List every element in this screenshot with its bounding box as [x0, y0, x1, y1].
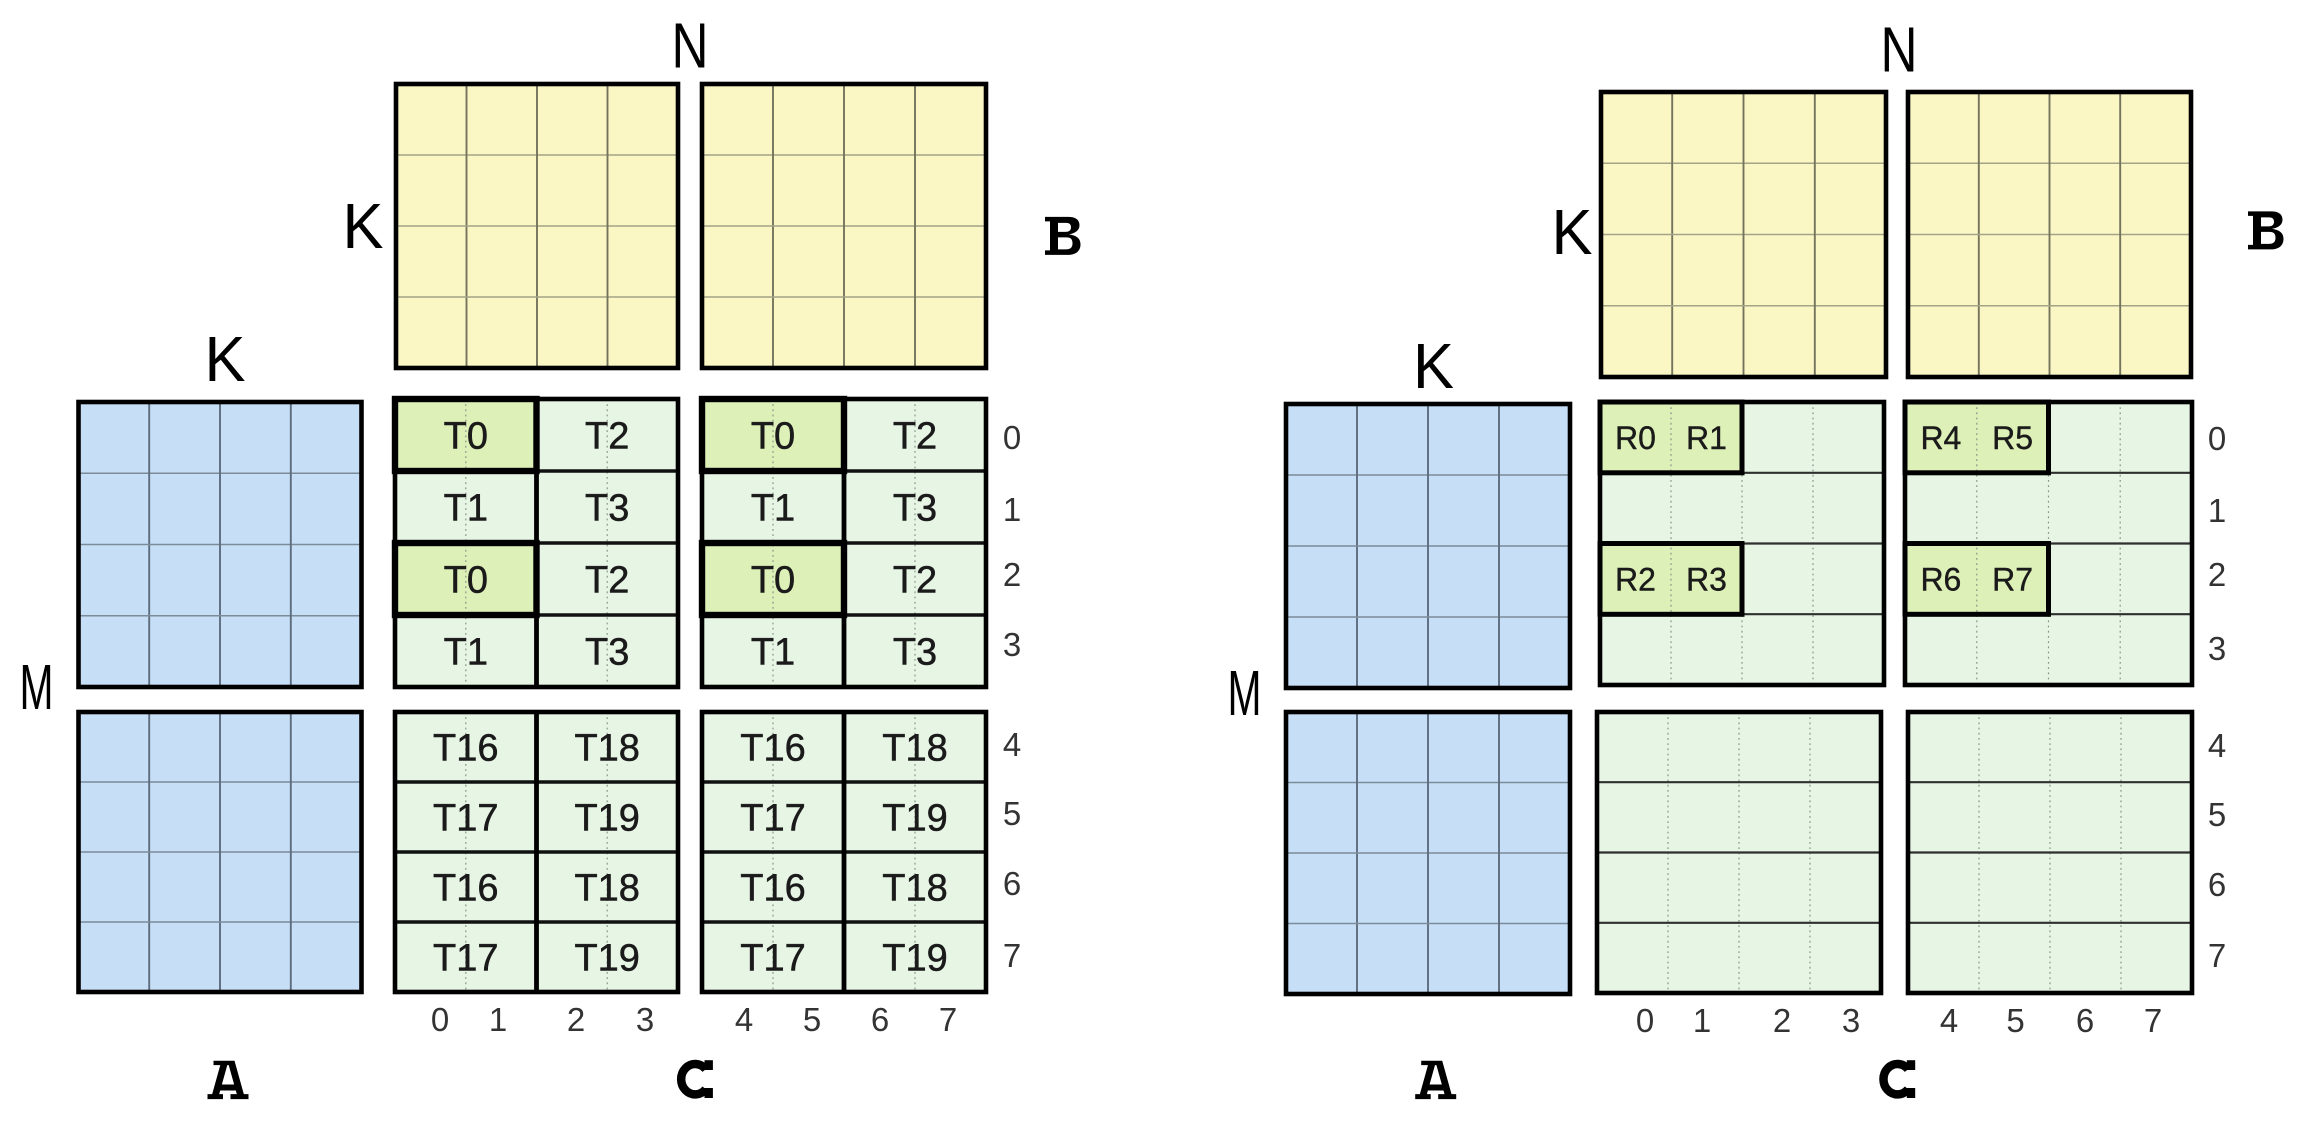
svg-text:M: M [20, 651, 54, 723]
svg-text:R6: R6 [1920, 561, 1961, 597]
svg-text:5: 5 [2006, 1002, 2024, 1039]
svg-text:7: 7 [2208, 937, 2226, 974]
svg-text:K: K [1413, 330, 1454, 402]
svg-text:4: 4 [735, 1001, 753, 1038]
svg-text:1: 1 [1003, 491, 1021, 528]
svg-text:0: 0 [2208, 420, 2226, 457]
svg-text:4: 4 [2208, 727, 2226, 764]
svg-text:1: 1 [489, 1001, 507, 1038]
svg-text:T17: T17 [433, 938, 498, 980]
svg-text:T3: T3 [893, 632, 937, 674]
svg-text:T18: T18 [882, 868, 947, 910]
svg-text:6: 6 [871, 1001, 889, 1038]
svg-text:T2: T2 [893, 560, 937, 602]
svg-text:3: 3 [1842, 1002, 1860, 1039]
svg-text:T0: T0 [751, 416, 795, 458]
svg-text:T0: T0 [751, 560, 795, 602]
svg-text:6: 6 [2076, 1002, 2094, 1039]
svg-text:T2: T2 [585, 560, 629, 602]
svg-text:5: 5 [1003, 795, 1021, 832]
svg-text:T2: T2 [893, 416, 937, 458]
svg-text:2: 2 [567, 1001, 585, 1038]
svg-text:7: 7 [1003, 937, 1021, 974]
svg-text:T1: T1 [444, 488, 488, 530]
svg-text:R5: R5 [1992, 420, 2033, 456]
svg-text:2: 2 [2208, 556, 2226, 593]
svg-text:T1: T1 [751, 632, 795, 674]
svg-text:T19: T19 [574, 798, 639, 840]
svg-text:6: 6 [1003, 865, 1021, 902]
svg-text:N: N [672, 10, 709, 82]
svg-text:T0: T0 [444, 416, 488, 458]
svg-text:7: 7 [2144, 1002, 2162, 1039]
svg-text:R3: R3 [1686, 561, 1727, 597]
svg-text:T0: T0 [444, 560, 488, 602]
svg-text:T19: T19 [882, 938, 947, 980]
svg-text:R7: R7 [1992, 561, 2033, 597]
svg-text:0: 0 [431, 1001, 449, 1038]
svg-text:T3: T3 [585, 488, 629, 530]
svg-text:5: 5 [2208, 796, 2226, 833]
svg-text:3: 3 [1003, 626, 1021, 663]
svg-text:T17: T17 [433, 798, 498, 840]
svg-text:T1: T1 [751, 488, 795, 530]
svg-text:T19: T19 [882, 798, 947, 840]
svg-text:K: K [205, 323, 246, 395]
svg-text:4: 4 [1940, 1002, 1958, 1039]
svg-text:T3: T3 [585, 632, 629, 674]
svg-text:T16: T16 [740, 868, 805, 910]
svg-text:1: 1 [1693, 1002, 1711, 1039]
svg-text:R1: R1 [1686, 420, 1727, 456]
svg-text:2: 2 [1773, 1002, 1791, 1039]
svg-text:3: 3 [636, 1001, 654, 1038]
svg-text:T16: T16 [433, 728, 498, 770]
svg-text:2: 2 [1003, 556, 1021, 593]
svg-text:0: 0 [1636, 1002, 1654, 1039]
svg-text:6: 6 [2208, 866, 2226, 903]
svg-text:T18: T18 [882, 728, 947, 770]
svg-text:7: 7 [939, 1001, 957, 1038]
svg-text:N: N [1881, 14, 1918, 86]
svg-text:0: 0 [1003, 419, 1021, 456]
svg-text:4: 4 [1003, 726, 1021, 763]
svg-text:3: 3 [2208, 630, 2226, 667]
svg-text:T18: T18 [574, 728, 639, 770]
svg-text:T16: T16 [433, 868, 498, 910]
svg-text:M: M [1228, 657, 1262, 729]
svg-text:T16: T16 [740, 728, 805, 770]
svg-text:T17: T17 [740, 938, 805, 980]
svg-text:T18: T18 [574, 868, 639, 910]
svg-text:T19: T19 [574, 938, 639, 980]
svg-text:K: K [1552, 196, 1593, 268]
svg-text:T2: T2 [585, 416, 629, 458]
svg-text:1: 1 [2208, 492, 2226, 529]
svg-text:K: K [343, 190, 384, 262]
svg-text:R0: R0 [1615, 420, 1656, 456]
svg-text:T17: T17 [740, 798, 805, 840]
svg-text:T3: T3 [893, 488, 937, 530]
svg-text:R4: R4 [1920, 420, 1961, 456]
svg-text:T1: T1 [444, 632, 488, 674]
svg-text:R2: R2 [1615, 561, 1656, 597]
svg-text:5: 5 [803, 1001, 821, 1038]
